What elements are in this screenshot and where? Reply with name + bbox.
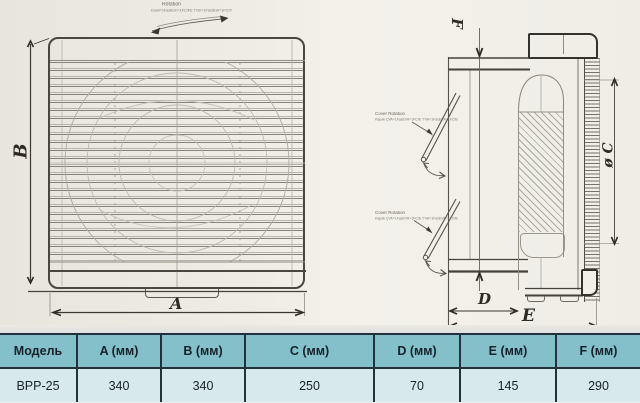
dim-label-f: F [451, 16, 462, 31]
side-bottom-cap [581, 269, 598, 296]
cover-rotation-2-title: Cover Rotation [375, 211, 405, 216]
rotation-arrow-arc [151, 16, 229, 35]
rotation-note: Dush=1FastExh=1FC/FE T'ish=1FastExh=1FC/… [151, 9, 232, 13]
mount-foot [560, 296, 579, 302]
cell-e: 145 [461, 369, 557, 402]
dimension-f [477, 28, 483, 291]
dimension-b [28, 39, 50, 284]
dimension-d [450, 308, 517, 314]
paper-edge-strip [0, 325, 640, 333]
col-header-b: B (мм) [162, 335, 246, 369]
dim-label-d: D [478, 292, 491, 307]
cover-rotation-1-title: Cover Rotation [375, 112, 405, 117]
cover-rotation-2-note: Kapak ÇVA=1FasEVA=1FC/E T'VA=1FasEVA=1FC… [375, 217, 458, 221]
rotation-title: Rotation [162, 2, 181, 8]
col-header-e: E (мм) [461, 335, 557, 369]
col-header-a: A (мм) [78, 335, 162, 369]
spec-table: Модель A (мм) B (мм) C (мм) D (мм) E (мм… [0, 333, 640, 403]
dimension-a [28, 292, 307, 317]
dim-label-a: A [170, 296, 182, 312]
cell-model: ВРР-25 [0, 369, 78, 402]
cell-c: 250 [246, 369, 375, 402]
fan-dimension-sheet: Rotation Dush=1FastExh=1FC/FE T'ish=1Fas… [0, 0, 640, 403]
cell-f: 290 [557, 369, 640, 402]
dim-label-b: B [14, 142, 29, 160]
cell-b: 340 [162, 369, 246, 402]
col-header-c: C (мм) [246, 335, 375, 369]
dim-label-c: ø C [596, 148, 621, 162]
front-view-linework [49, 40, 306, 287]
cell-d: 70 [375, 369, 461, 402]
side-view-linework [448, 57, 583, 329]
cell-a: 340 [78, 369, 162, 402]
drawing-paper: Rotation Dush=1FastExh=1FC/FE T'ish=1Fas… [0, 0, 640, 333]
col-header-d: D (мм) [375, 335, 461, 369]
top-cap-inner-line [563, 35, 564, 54]
mount-foot [527, 296, 545, 302]
dim-label-e: E [522, 308, 535, 325]
cover-rotation-1-note: Kapak ÇVA=1FasEVA=1FC/E T'VA=1FasEVA=1FC… [375, 118, 458, 122]
col-header-f: F (мм) [557, 335, 640, 369]
col-header-model: Модель [0, 335, 78, 369]
